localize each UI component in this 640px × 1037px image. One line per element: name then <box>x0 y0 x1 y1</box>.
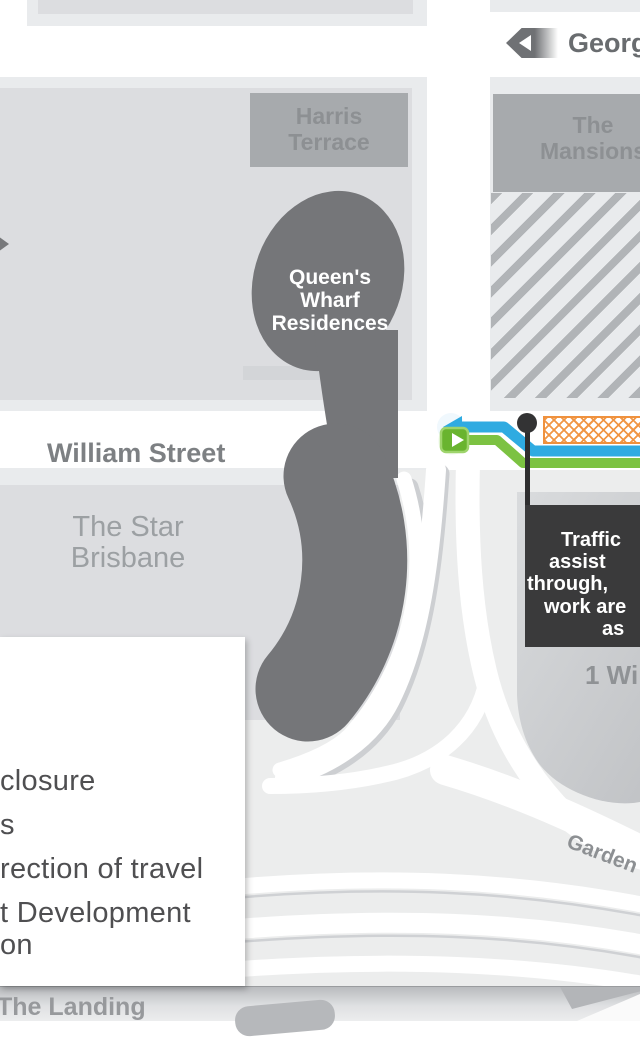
queens-wharf-residences-label: Queen's Wharf Residences <box>240 266 420 335</box>
callout-pin-stem <box>525 425 530 509</box>
callout-line: work are <box>544 596 626 619</box>
legend-item: s <box>0 809 15 842</box>
george-arrow-glyph <box>519 35 531 51</box>
mansions-label: The Mansions <box>493 112 640 164</box>
callout-pin <box>517 413 537 433</box>
harris-terrace-label: Harris Terrace <box>250 103 408 155</box>
edge-arrow-icon <box>0 236 9 252</box>
callout-line: as <box>602 618 624 641</box>
william-street-label: William Street <box>47 438 225 469</box>
star-brisbane-label: The Star Brisbane <box>28 512 228 574</box>
callout-line: assist <box>549 551 606 574</box>
legend-item: on <box>0 929 33 962</box>
callout-line: Traffic <box>561 529 621 552</box>
the-landing-label: The Landing <box>0 993 146 1022</box>
legend-item: rection of travel <box>0 853 203 886</box>
george-street-label: Georg <box>568 28 640 59</box>
legend-item: t Development <box>0 897 191 930</box>
map-legend: closure s rection of travel t Developmen… <box>0 637 245 986</box>
legend-item: closure <box>0 765 96 798</box>
traffic-callout: Traffic assist through, work are as <box>525 505 640 647</box>
work-zone-hatched <box>543 416 640 444</box>
traffic-map: { "labels": { "george_street": "Georg", … <box>0 0 640 1020</box>
landing-blob <box>234 999 336 1037</box>
route-green-marker <box>441 428 468 452</box>
callout-line: through, <box>527 573 608 596</box>
one-william-label: 1 Wi <box>585 660 638 691</box>
